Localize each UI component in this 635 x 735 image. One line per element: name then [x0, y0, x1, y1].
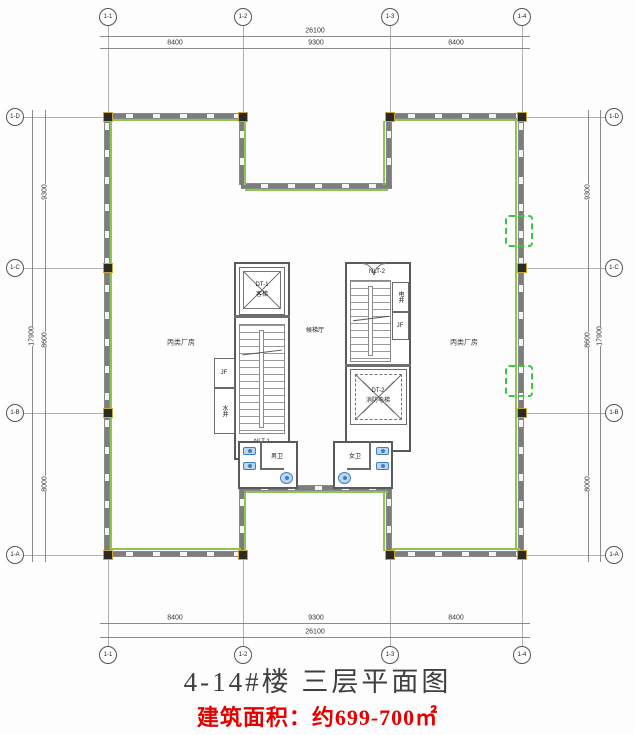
window-line: [110, 119, 241, 121]
window-line: [392, 548, 520, 550]
dimension-line: [100, 36, 530, 37]
room-label-right-hall: 丙类厂房: [450, 340, 478, 347]
grid-bubble-label: 1-B: [609, 410, 618, 416]
column: [238, 112, 248, 122]
grid-line: [524, 413, 606, 414]
elevator-id-label: DT-2: [371, 388, 384, 394]
grid-bubble-label: 1-B: [10, 410, 19, 416]
grid-bubble: 1-1: [99, 646, 117, 664]
grid-bubble-label: 1-D: [609, 114, 619, 120]
grid-bubble-label: 1-D: [10, 114, 20, 120]
toilet-partition: [260, 468, 284, 470]
grid-line: [522, 557, 523, 647]
dimension-label: 17900: [597, 326, 604, 345]
grid-bubble: 1-2: [234, 8, 252, 26]
dashed-green-marker: [505, 365, 533, 397]
grid-line: [23, 117, 108, 118]
grid-bubble-label: 1-3: [386, 14, 395, 20]
shaft-label: 电井: [397, 291, 403, 303]
exterior-wall: [386, 117, 392, 185]
window-line: [244, 121, 246, 185]
toilet-bowl: [285, 476, 289, 480]
grid-bubble: 1-2: [234, 646, 252, 664]
grid-bubble-label: 1-A: [609, 552, 618, 558]
dimension-line: [100, 623, 530, 624]
column: [385, 112, 395, 122]
sink-basin: [381, 449, 385, 453]
column: [517, 263, 527, 273]
grid-bubble-label: 1-C: [10, 265, 20, 271]
core-wall: [345, 364, 411, 367]
window-line: [383, 121, 385, 185]
dimension-label: 8400: [447, 615, 465, 622]
sink: [243, 447, 256, 455]
dimension-line: [100, 48, 530, 49]
sink-basin: [381, 464, 385, 468]
room-label-lobby: 候梯厅: [306, 328, 324, 334]
grid-bubble: 1-4: [513, 8, 531, 26]
grid-line: [23, 268, 108, 269]
grid-bubble: 1-B: [605, 404, 623, 422]
sink-basin: [248, 464, 252, 468]
grid-line: [524, 117, 606, 118]
grid-bubble-label: 1-3: [386, 652, 395, 658]
building-area-note: 建筑面积：约699-700㎡: [0, 700, 635, 732]
dimension-line: [100, 637, 530, 638]
grid-bubble-label: 1-2: [239, 14, 248, 20]
window-line: [245, 189, 388, 191]
dimension-label: 17900: [29, 326, 36, 345]
grid-bubble: 1-3: [381, 646, 399, 664]
dimension-label: 9300: [585, 184, 592, 200]
grid-bubble-label: 1-2: [239, 652, 248, 658]
toilet-partition: [260, 441, 262, 469]
grid-bubble-label: 1-1: [104, 14, 113, 20]
sink-basin: [248, 449, 252, 453]
elevator-type-label: 客梯: [256, 292, 268, 298]
grid-bubble-label: 1-1: [104, 652, 113, 658]
stair-rail: [368, 286, 373, 356]
column: [385, 550, 395, 560]
core-wall: [234, 315, 290, 318]
room-label-left-hall: 丙类厂房: [167, 340, 195, 347]
column: [103, 408, 113, 418]
window-line: [392, 119, 520, 121]
toilet-partition: [347, 468, 371, 470]
toilet-fixture: [280, 472, 293, 484]
grid-line: [524, 555, 606, 556]
grid-bubble: 1-B: [6, 404, 24, 422]
dimension-label: 8400: [166, 40, 184, 47]
dimension-label: 26100: [304, 28, 325, 35]
column: [103, 112, 113, 122]
dimension-label: 9300: [307, 615, 325, 622]
dimension-label: 8400: [447, 40, 465, 47]
dimension-label: 8600: [42, 332, 49, 348]
stair-rail: [259, 330, 264, 428]
dimension-label: 26100: [304, 629, 325, 636]
exterior-wall: [518, 115, 524, 555]
grid-bubble-label: 1-4: [518, 652, 527, 658]
elevator-id-label: DT-1: [255, 282, 268, 288]
grid-line: [243, 25, 244, 117]
grid-bubble: 1-C: [6, 259, 24, 277]
stair-label: NLT-2: [369, 269, 385, 275]
grid-line: [243, 557, 244, 647]
grid-bubble-label: 1-4: [518, 14, 527, 20]
shaft-label: JF: [397, 323, 404, 329]
grid-bubble: 1-1: [99, 8, 117, 26]
column: [517, 112, 527, 122]
grid-bubble-label: 1-A: [10, 552, 19, 558]
window-line: [515, 121, 517, 548]
toilet-label: 男卫: [271, 454, 283, 460]
dimension-label: 8000: [585, 476, 592, 492]
column: [517, 550, 527, 560]
dimension-label: 9300: [42, 184, 49, 200]
grid-bubble: 1-4: [513, 646, 531, 664]
exterior-wall: [388, 551, 524, 557]
sink: [376, 447, 389, 455]
column: [517, 408, 527, 418]
window-line: [244, 493, 246, 551]
grid-bubble: 1-A: [6, 546, 24, 564]
exterior-wall: [386, 489, 392, 553]
shaft-label: JF: [221, 370, 228, 376]
dimension-label: 9300: [307, 40, 325, 47]
toilet-label: 女卫: [349, 454, 361, 460]
grid-bubble-label: 1-C: [609, 265, 619, 271]
dimension-label: 8400: [166, 615, 184, 622]
dimension-label: 8000: [42, 476, 49, 492]
toilet-partition: [369, 441, 371, 469]
window-line: [245, 491, 388, 493]
grid-bubble: 1-A: [605, 546, 623, 564]
grid-line: [23, 413, 108, 414]
shaft-label: 水井: [221, 405, 227, 417]
grid-line: [524, 268, 606, 269]
elevator-type-label: 消防电梯: [366, 398, 390, 404]
toilet-fixture: [338, 472, 351, 484]
grid-line: [390, 25, 391, 117]
column: [103, 263, 113, 273]
exterior-wall: [106, 551, 245, 557]
grid-bubble: 1-D: [605, 108, 623, 126]
elevator-car-dt1: [243, 271, 281, 309]
column: [103, 550, 113, 560]
window-line: [110, 548, 241, 550]
window-line: [383, 493, 385, 551]
grid-line: [390, 557, 391, 647]
grid-line: [522, 25, 523, 117]
dashed-green-marker: [505, 215, 533, 247]
grid-line: [108, 25, 109, 117]
elevator-car-dt2: [355, 374, 402, 420]
grid-bubble: 1-D: [6, 108, 24, 126]
sink: [243, 462, 256, 470]
toilet-bowl: [343, 476, 347, 480]
grid-line: [108, 557, 109, 647]
grid-bubble: 1-C: [605, 259, 623, 277]
grid-line: [23, 555, 108, 556]
drawing-title: 4-14#楼 三层平面图: [0, 668, 635, 698]
window-line: [110, 121, 112, 548]
dimension-label: 8600: [585, 332, 592, 348]
column: [238, 550, 248, 560]
grid-bubble: 1-3: [381, 8, 399, 26]
floor-plan-drawing: 26100 8400 9300 8400 8400 9300 8400 2610…: [0, 0, 635, 735]
sink: [376, 462, 389, 470]
